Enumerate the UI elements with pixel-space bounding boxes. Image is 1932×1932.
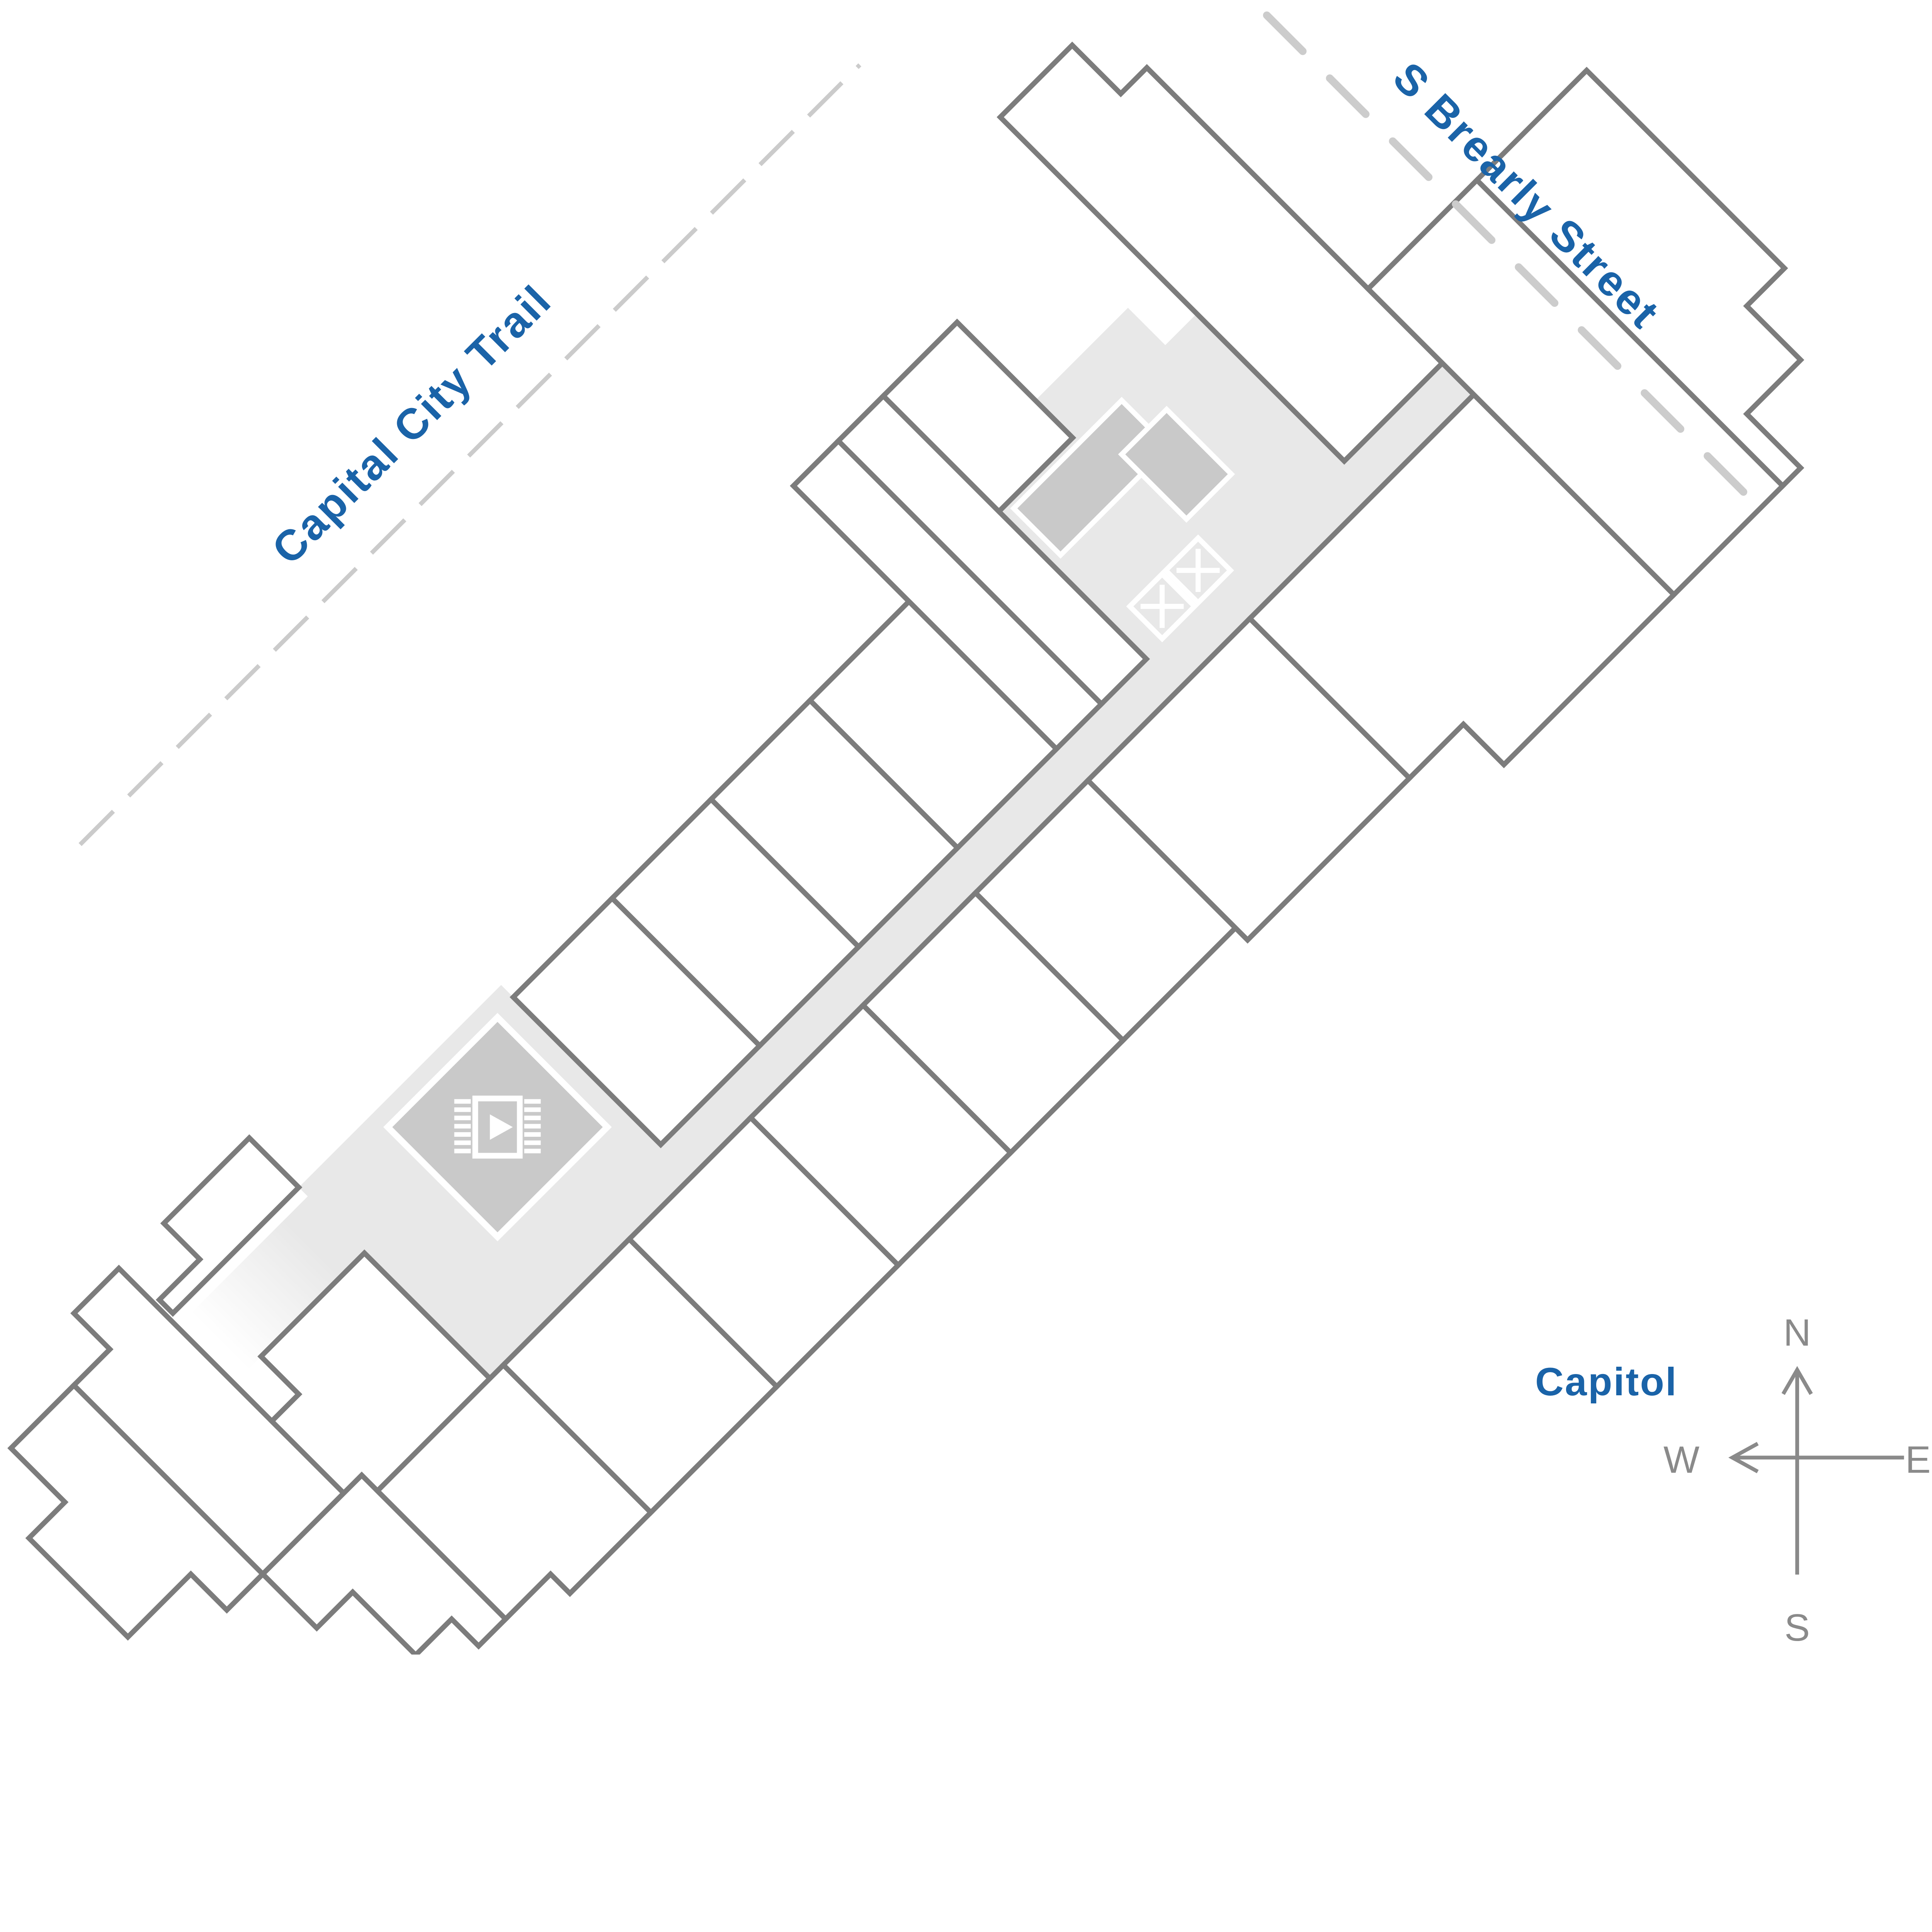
compass-west: W [1663, 1439, 1699, 1481]
trail-dashed-line [80, 65, 860, 845]
trail-label: Capital City Trail [263, 276, 561, 573]
compass-east: E [1905, 1439, 1931, 1481]
site-plan: Capital City Trail S Brearly Street Capi… [0, 0, 1932, 1655]
landmark-label: Capitol [1535, 1360, 1678, 1404]
compass-north: N [1783, 1311, 1811, 1354]
compass-south: S [1784, 1606, 1810, 1649]
compass-rose: N S W E [1663, 1311, 1931, 1649]
